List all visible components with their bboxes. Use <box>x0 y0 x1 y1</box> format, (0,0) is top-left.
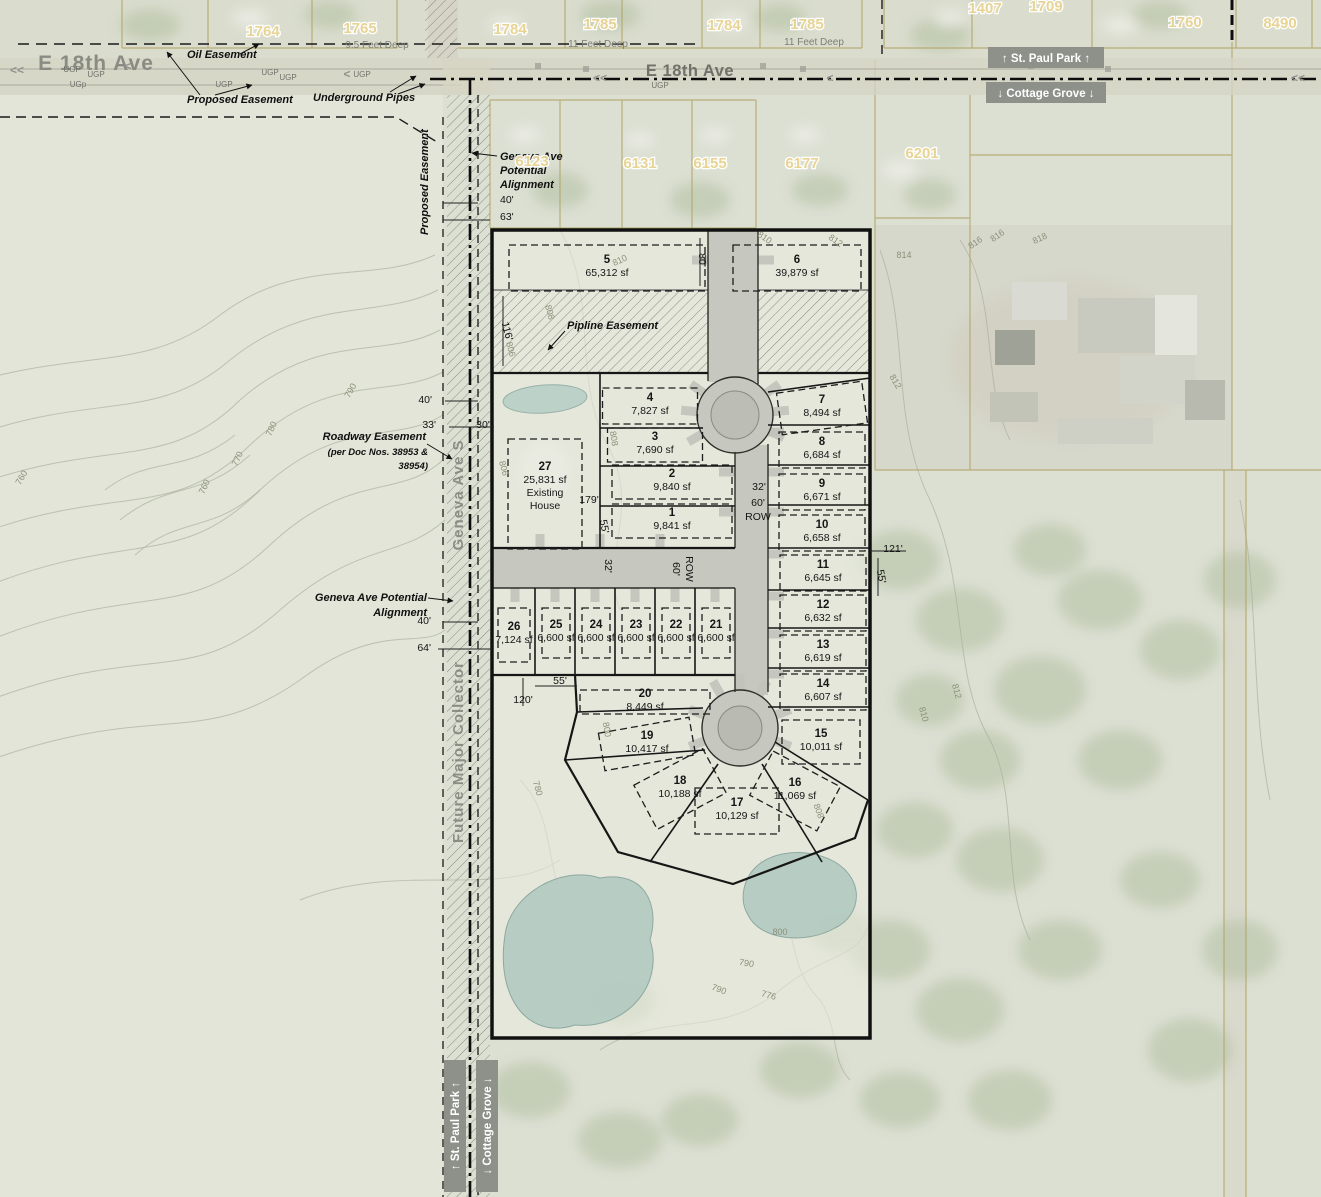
driveway-stub <box>689 741 704 746</box>
lot-25-detail: 6,600 sf <box>537 632 574 644</box>
annotation-label: Alignment <box>499 179 555 191</box>
annotation-label: << <box>10 63 24 77</box>
lot-7-number: 7 <box>819 394 825 406</box>
house-number: 1785 <box>583 16 616 33</box>
municipal-box-top-south: ↓ Cottage Grove ↓ <box>986 82 1106 103</box>
dimension-label: 32' <box>752 481 766 493</box>
annotation-label: Oil Easement <box>187 49 258 61</box>
house-number: 6155 <box>693 155 726 172</box>
dimension-label: 120' <box>513 694 533 706</box>
annotation-label: E 18th Ave <box>646 62 734 80</box>
lot-27-detail: House <box>530 500 561 512</box>
lot-12-detail: 6,632 sf <box>804 612 841 624</box>
house-number: 1785 <box>790 16 823 33</box>
house-number: 6201 <box>905 145 938 162</box>
annotation-label: UGP <box>87 70 104 79</box>
house-number: 6177 <box>785 155 818 172</box>
municipal-label-st-paul-park-top: ↑ St. Paul Park ↑ <box>1002 53 1090 65</box>
contour-label: 800 <box>772 927 787 937</box>
annotation-label: Pipline Easement <box>567 320 659 332</box>
lot-10-detail: 6,658 sf <box>803 532 840 544</box>
pond-medium <box>743 853 856 938</box>
lot-24-number: 24 <box>590 619 603 631</box>
pond-large <box>503 875 653 1028</box>
annotation-label: << <box>1291 71 1305 85</box>
house-number: 1764 <box>246 23 280 40</box>
dimension-label: 60' <box>751 497 765 509</box>
lot-12-number: 12 <box>817 599 830 611</box>
dimension-label: 30' <box>476 419 490 431</box>
lot-20-number: 20 <box>639 688 652 700</box>
annotation-label: Future Major Collector <box>450 661 467 843</box>
lot-3-detail: 7,690 sf <box>636 444 673 456</box>
annotation-label: Roadway Easement <box>323 431 428 443</box>
annotation-label: UGP <box>261 68 278 77</box>
lot-1-detail: 9,841 sf <box>653 520 690 532</box>
lot-27-detail: Existing <box>527 487 564 499</box>
lot-9-number: 9 <box>819 478 825 490</box>
dimension-label: 40' <box>417 615 431 627</box>
lot-23-detail: 6,600 sf <box>617 632 654 644</box>
house-number: 1784 <box>707 17 741 34</box>
house-number: 6123 <box>515 153 548 170</box>
site-plan-page: E 18th AveE 18th AveGeneva Ave SFuture M… <box>0 0 1321 1197</box>
annotation-label: Proposed Easement <box>187 94 294 106</box>
lot-10-number: 10 <box>816 519 829 531</box>
annotation-label: UGP <box>353 70 370 79</box>
lot-8-number: 8 <box>819 436 826 448</box>
lot-14-detail: 6,607 sf <box>804 691 841 703</box>
annotation-label: UGP <box>63 65 80 74</box>
driveway-stub <box>681 410 697 411</box>
lot-1-number: 1 <box>669 507 676 519</box>
annotation-label: 38954) <box>398 461 428 472</box>
annotation-label: UGP <box>279 73 296 82</box>
lot-18-number: 18 <box>674 775 687 787</box>
lot-18-detail: 10,188 sf <box>658 788 701 800</box>
dimension-label: 55' <box>553 675 567 687</box>
house-number: 1760 <box>1168 14 1201 31</box>
house-number: 8490 <box>1263 15 1296 32</box>
annotation-label: 11 Feet Deep <box>568 39 628 50</box>
lot-5-number: 5 <box>604 254 611 266</box>
dimension-label: 32' <box>602 559 614 573</box>
annotation-label: Underground Pipes <box>313 92 415 104</box>
lot-7-detail: 8,494 sf <box>803 407 840 419</box>
dimension-label: 121' <box>883 543 903 555</box>
lot-8-detail: 6,684 sf <box>803 449 840 461</box>
dimension-label: 80' <box>696 253 708 267</box>
annotation-label: (per Doc Nos. 38953 & <box>328 447 428 458</box>
lot-9-detail: 6,671 sf <box>803 491 840 503</box>
municipal-box-bottom-west: ↑ St. Paul Park ↑ <box>444 1060 466 1192</box>
dimension-label: 179' <box>579 494 599 506</box>
annotation-label: 9.5 Feet Deep <box>345 40 409 51</box>
lot-6-number: 6 <box>794 254 800 266</box>
annotation-label: < <box>124 59 131 73</box>
annotation-label: << <box>593 71 607 85</box>
annotation-label: UGP <box>651 81 668 90</box>
municipal-label-cottage-grove-top: ↓ Cottage Grove ↓ <box>997 88 1094 100</box>
lot-21-detail: 6,600 sf <box>697 632 734 644</box>
site-plan-map: E 18th AveE 18th AveGeneva Ave SFuture M… <box>0 0 1321 1197</box>
lot-21-number: 21 <box>710 619 723 631</box>
lot-4-detail: 7,827 sf <box>631 405 668 417</box>
house-number: 6131 <box>623 155 656 172</box>
dimension-label: ROW <box>745 511 771 523</box>
dimension-label: 63' <box>500 211 514 223</box>
lot-5-detail: 65,312 sf <box>585 267 628 279</box>
lot-15-detail: 10,011 sf <box>800 741 843 753</box>
lot-22-detail: 6,600 sf <box>657 632 694 644</box>
lot-2-number: 2 <box>669 468 675 480</box>
annotation-label: Geneva Ave S <box>450 440 467 551</box>
lot-17-number: 17 <box>731 797 744 809</box>
lot-23-number: 23 <box>630 619 643 631</box>
lot-20-detail: 8,449 sf <box>626 701 663 713</box>
annotation-label: UGP <box>215 80 232 89</box>
lot-2-detail: 9,840 sf <box>653 481 690 493</box>
dimension-label: 64' <box>417 642 431 654</box>
lot-16-number: 16 <box>789 777 802 789</box>
lot-19-number: 19 <box>641 730 654 742</box>
dimension-label: 55' <box>597 519 611 535</box>
lot-3-number: 3 <box>652 431 658 443</box>
lot-6-detail: 39,879 sf <box>775 267 818 279</box>
dimension-label: 60' <box>670 562 682 576</box>
house-number: 1709 <box>1029 0 1062 15</box>
lot-27-detail: 25,831 sf <box>523 474 566 486</box>
lot-11-detail: 6,645 sf <box>804 572 841 584</box>
lot-25-number: 25 <box>550 619 563 631</box>
lot-19-detail: 10,417 sf <box>625 743 668 755</box>
house-number: 1765 <box>343 20 376 37</box>
lot-26-detail: 7,124 sf <box>495 634 532 646</box>
lot-4-number: 4 <box>647 392 654 404</box>
house-number: 1784 <box>493 21 527 38</box>
dimension-label: 33' <box>422 419 436 431</box>
dimension-label: 40' <box>500 194 514 206</box>
municipal-label-cottage-grove-bottom: ↓ Cottage Grove ↓ <box>482 1077 494 1174</box>
annotation-label: UGp <box>70 80 87 89</box>
lot-17-detail: 10,129 sf <box>715 810 758 822</box>
lot-22-number: 22 <box>670 619 683 631</box>
lot-27-number: 27 <box>539 461 552 473</box>
lot-24-detail: 6,600 sf <box>577 632 614 644</box>
contour-label: 814 <box>896 250 911 260</box>
annotation-label: 11 Feet Deep <box>784 37 844 48</box>
driveway-stub <box>773 410 789 411</box>
lot-13-detail: 6,619 sf <box>804 652 841 664</box>
dimension-label: 40' <box>418 394 432 406</box>
lot-15-number: 15 <box>815 728 828 740</box>
lot-26-number: 26 <box>508 621 521 633</box>
lot-16-detail: 11,069 sf <box>774 790 817 802</box>
annotation-label: Geneva Ave Potential <box>315 592 428 604</box>
dimension-label: ROW <box>683 556 695 582</box>
annotation-label: < <box>343 67 350 81</box>
dimension-label: 55' <box>874 569 888 585</box>
municipal-box-top-north: ↑ St. Paul Park ↑ <box>988 47 1104 68</box>
house-number: 1407 <box>968 0 1001 17</box>
lot-13-number: 13 <box>817 639 830 651</box>
municipal-box-bottom-east: ↓ Cottage Grove ↓ <box>476 1060 498 1192</box>
lot-14-number: 14 <box>817 678 830 690</box>
annotation-label: < <box>826 71 833 85</box>
pipeline-easement-hatch <box>492 290 870 373</box>
lot-11-number: 11 <box>817 559 830 571</box>
municipal-label-st-paul-park-bottom: ↑ St. Paul Park ↑ <box>450 1082 462 1170</box>
annotation-label: Proposed Easement <box>419 128 431 235</box>
